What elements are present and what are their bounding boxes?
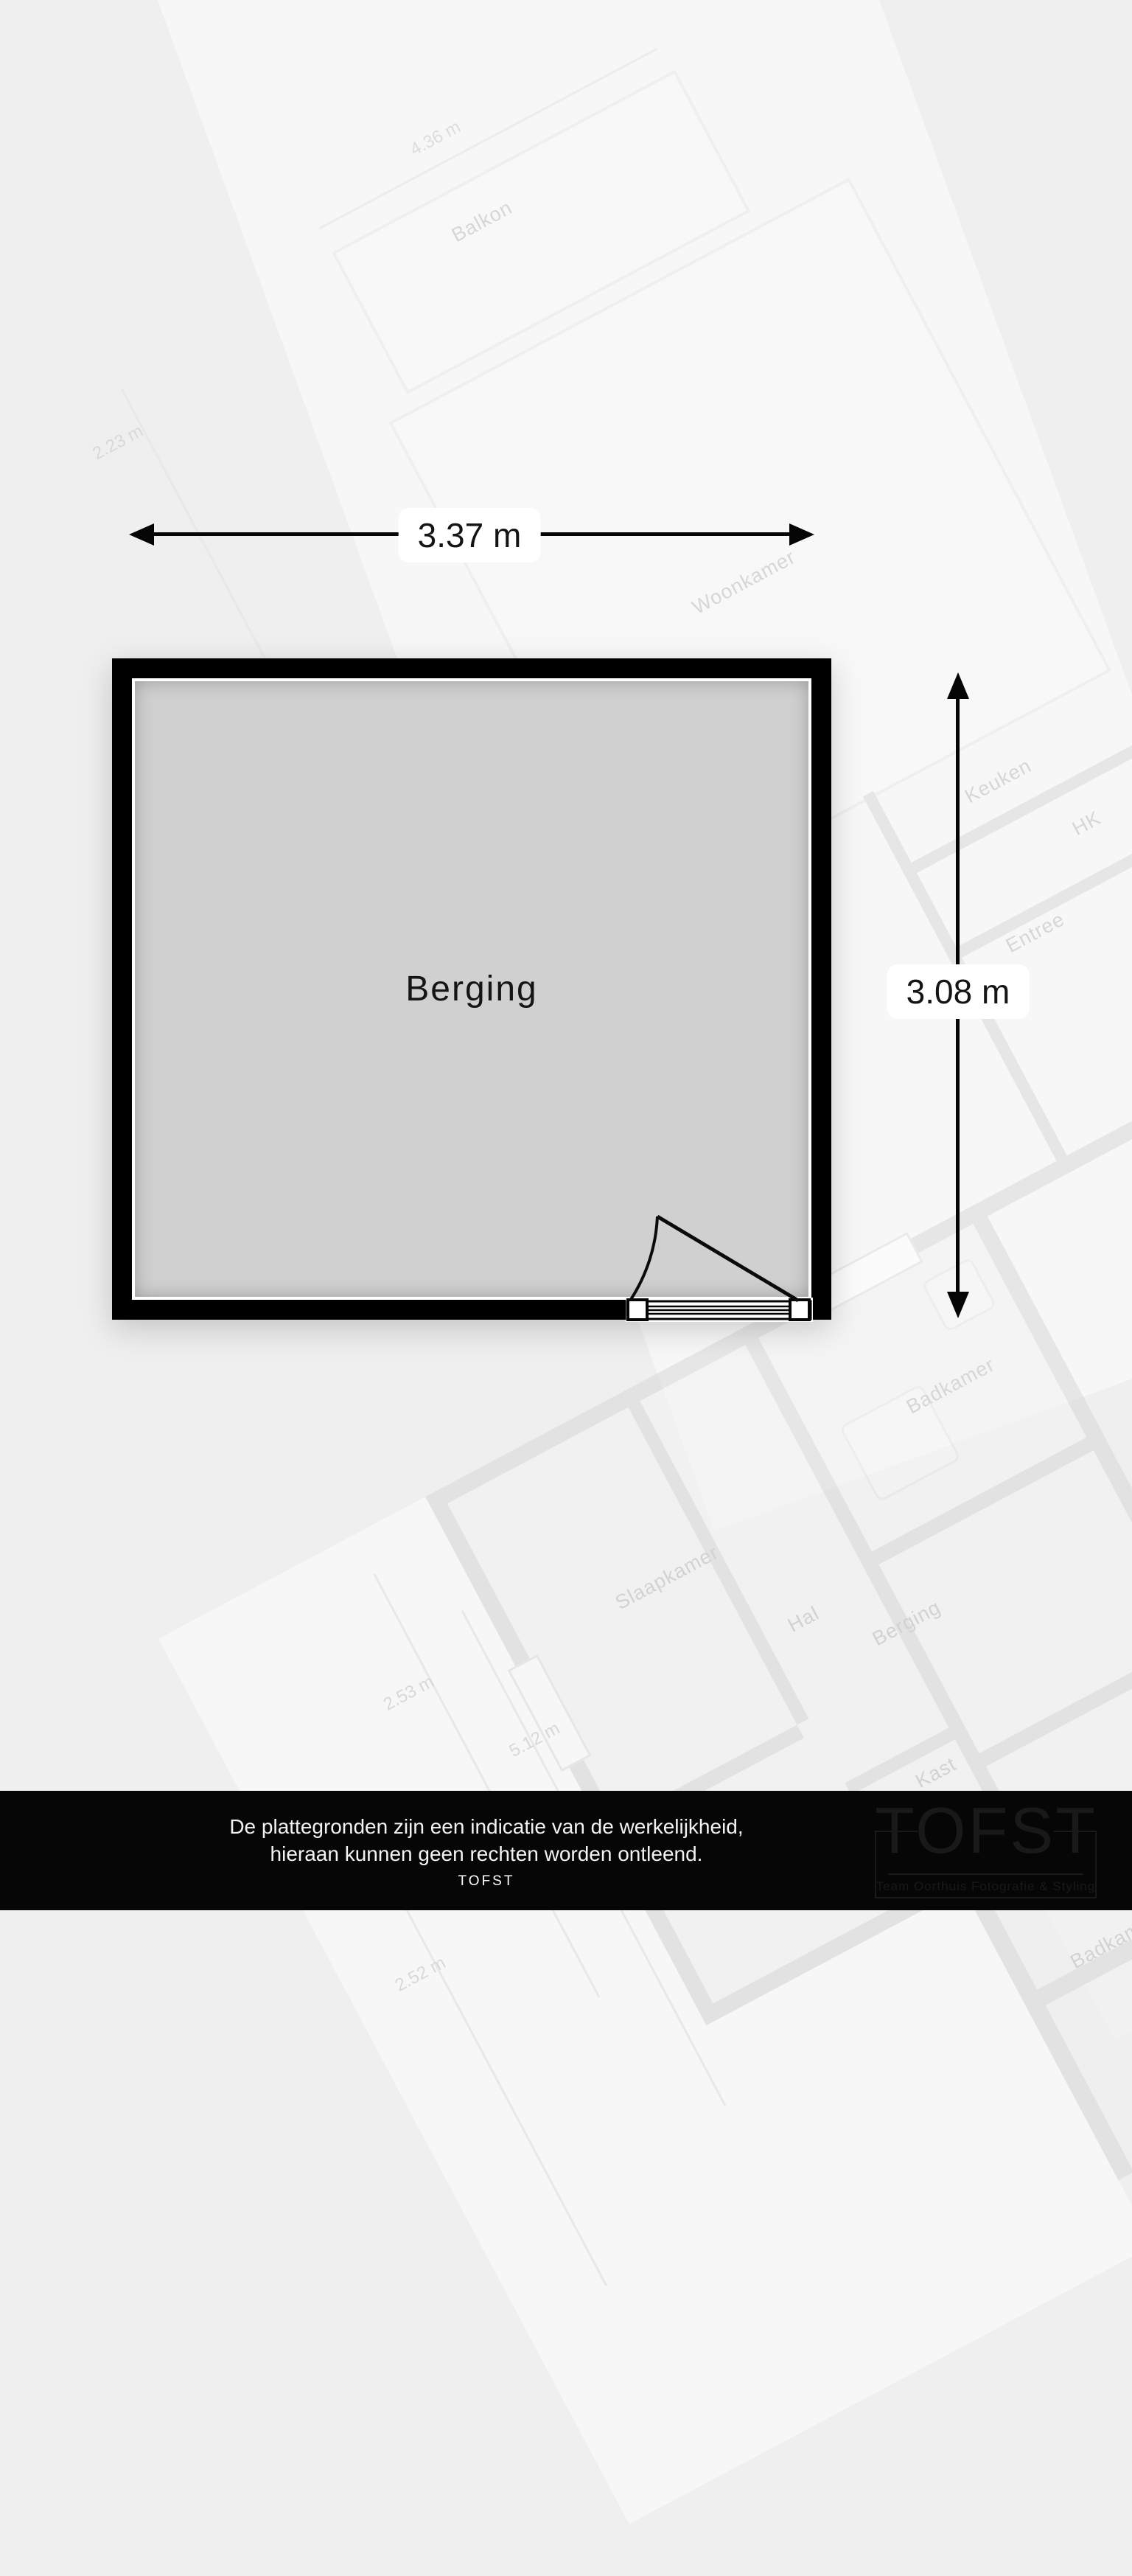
bg-label-keuken: Keuken (961, 754, 1035, 808)
brand-name: TOFST (0, 1873, 973, 1890)
height-dimension-label: 3.08 m (887, 964, 1030, 1019)
arrow-right-icon (789, 523, 814, 546)
disclaimer-line-2: hieraan kunnen geen rechten worden ontle… (0, 1840, 973, 1867)
bg-dim-223: 2.23 m (89, 421, 147, 464)
disclaimer: De plattegronden zijn een indicatie van … (0, 1813, 973, 1890)
tofst-logo: TOFST Team Oorthuis Fotografie & Styling (875, 1803, 1097, 1904)
arrow-up-icon (947, 672, 969, 699)
door-swing-icon (604, 1150, 840, 1334)
arrow-left-icon (129, 523, 154, 546)
logo-divider (888, 1873, 1083, 1875)
disclaimer-line-1: De plattegronden zijn een indicatie van … (0, 1813, 973, 1840)
logo-title: TOFST (875, 1798, 1097, 1863)
bg-label-hk: HK (1069, 807, 1105, 840)
width-dimension-label: 3.37 m (399, 508, 541, 563)
arrow-down-icon (947, 1292, 969, 1318)
logo-subtitle: Team Oorthuis Fotografie & Styling (875, 1879, 1097, 1894)
footer: De plattegronden zijn een indicatie van … (0, 1791, 1132, 1910)
room-label: Berging (405, 969, 537, 1009)
